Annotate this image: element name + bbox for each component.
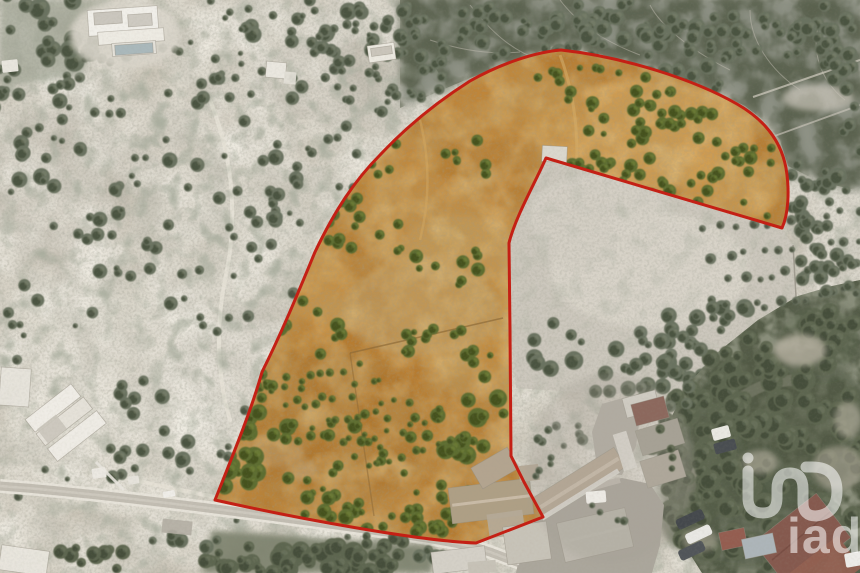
svg-text:iad: iad xyxy=(787,508,860,564)
